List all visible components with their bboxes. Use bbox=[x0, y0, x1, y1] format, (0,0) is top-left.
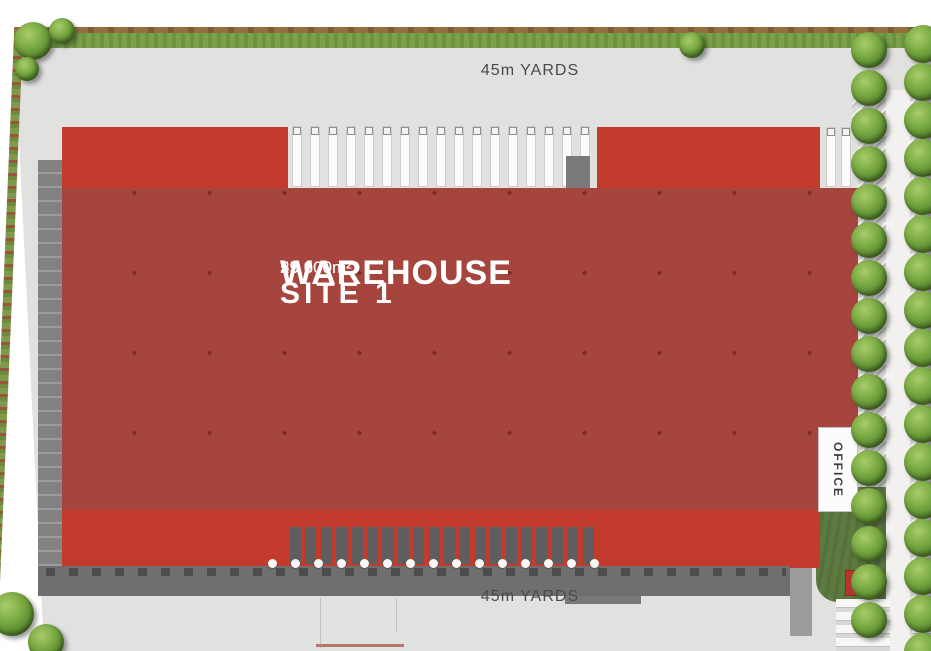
dock-door bbox=[383, 127, 391, 186]
dock-bumpers-row bbox=[266, 556, 610, 572]
office-block: OFFICE bbox=[818, 427, 858, 512]
dock-door bbox=[491, 127, 499, 186]
yard-dimension-top: 45m YARDS bbox=[410, 62, 650, 80]
dock-door bbox=[473, 127, 481, 186]
dock-door bbox=[842, 128, 850, 186]
dock-door bbox=[311, 127, 319, 186]
dock-bumper bbox=[498, 559, 507, 568]
dock-bumper bbox=[268, 559, 277, 568]
dock-bumper bbox=[429, 559, 438, 568]
dock-plant-room bbox=[566, 156, 590, 188]
dock-door bbox=[527, 127, 535, 186]
yard-marking-line bbox=[396, 598, 397, 632]
dock-bumper bbox=[314, 559, 323, 568]
dock-door bbox=[401, 127, 409, 186]
site-title: SITE 1 bbox=[280, 278, 396, 310]
dock-door bbox=[329, 127, 337, 186]
dock-bumper bbox=[544, 559, 553, 568]
grass-strip-top bbox=[14, 33, 931, 48]
dock-door bbox=[455, 127, 463, 186]
dock-door bbox=[293, 127, 301, 186]
dock-door bbox=[419, 127, 427, 186]
dock-bumper bbox=[452, 559, 461, 568]
dock-door bbox=[545, 127, 553, 186]
dock-bumper bbox=[291, 559, 300, 568]
parking-bays-right bbox=[912, 599, 931, 651]
parking-hatch-right bbox=[910, 90, 931, 651]
yard-dimension-bottom: 45m YARDS bbox=[410, 588, 650, 606]
dock-door bbox=[347, 127, 355, 186]
west-dock-apron bbox=[38, 160, 62, 566]
dock-bumper bbox=[383, 559, 392, 568]
dock-door bbox=[827, 128, 835, 186]
tree-icon bbox=[0, 592, 34, 636]
access-road bbox=[886, 90, 910, 651]
dock-bumper bbox=[567, 559, 576, 568]
site-plan: OFFICE 45m YARDS 45m YARDS WAREHOUSE 25 … bbox=[0, 0, 931, 651]
dock-bumper bbox=[337, 559, 346, 568]
site-area: 59 900m² bbox=[280, 258, 352, 278]
north-dock-doors-right bbox=[820, 127, 858, 188]
dock-bumper bbox=[406, 559, 415, 568]
dock-door bbox=[365, 127, 373, 186]
dock-door bbox=[437, 127, 445, 186]
dock-bumper bbox=[590, 559, 599, 568]
dock-bumper bbox=[360, 559, 369, 568]
yard-red-marking bbox=[316, 644, 404, 647]
warehouse-roof bbox=[62, 188, 858, 510]
south-east-ramp bbox=[790, 568, 812, 636]
dock-bumper bbox=[475, 559, 484, 568]
dock-door bbox=[509, 127, 517, 186]
dock-bumper bbox=[521, 559, 530, 568]
yard-marking-line bbox=[320, 598, 321, 648]
north-dock-doors bbox=[288, 126, 597, 188]
utility-structure bbox=[845, 570, 879, 596]
parking-bays-left bbox=[836, 599, 890, 651]
office-label: OFFICE bbox=[831, 442, 845, 498]
